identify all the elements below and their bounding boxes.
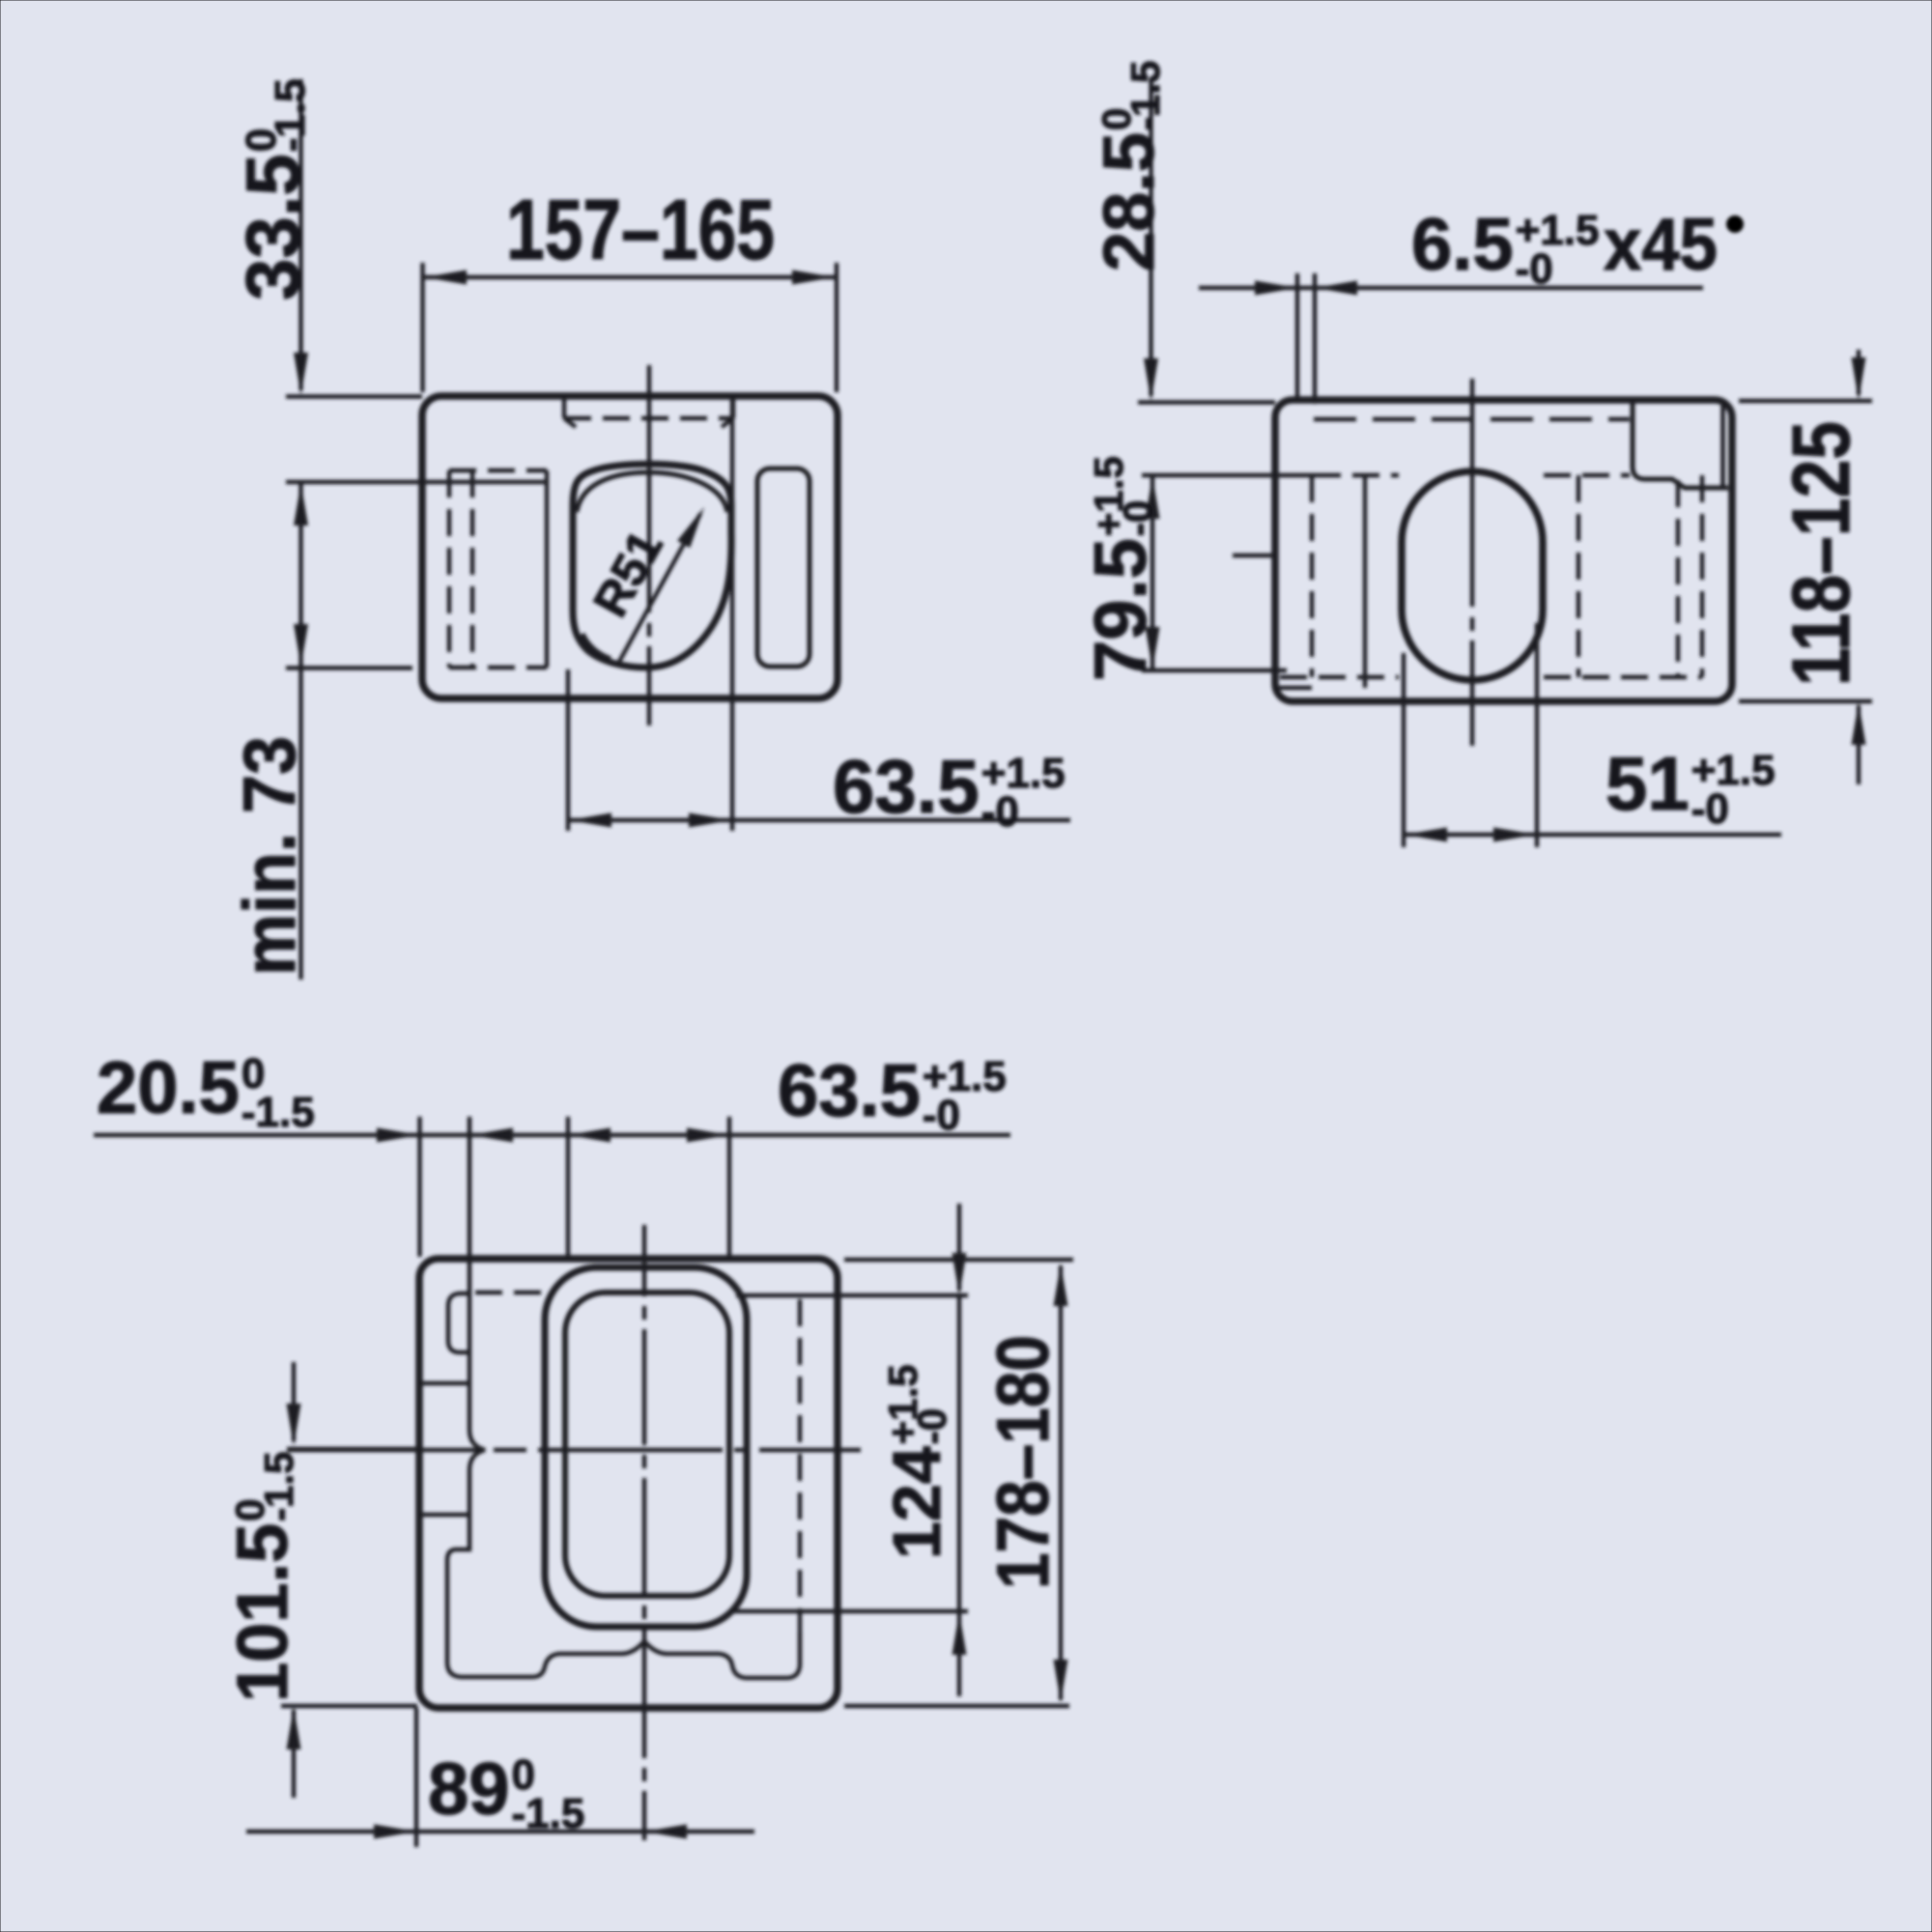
svg-text:63.5: 63.5 xyxy=(833,744,980,829)
svg-text:79.5: 79.5 xyxy=(1080,538,1162,681)
svg-text:-1.5: -1.5 xyxy=(241,1089,315,1136)
svg-text:-0: -0 xyxy=(1115,500,1160,536)
svg-text:-0: -0 xyxy=(981,788,1019,836)
svg-text:x45: x45 xyxy=(1604,204,1718,286)
svg-text:-0: -0 xyxy=(1691,785,1729,833)
svg-text:101.5: 101.5 xyxy=(222,1523,302,1702)
svg-text:157–165: 157–165 xyxy=(506,182,775,277)
svg-text:118–125: 118–125 xyxy=(1776,421,1866,686)
svg-text:-0: -0 xyxy=(923,1092,960,1139)
svg-text:R51: R51 xyxy=(582,522,672,625)
svg-text:-1.5: -1.5 xyxy=(267,78,314,152)
svg-text:124: 124 xyxy=(879,1446,954,1559)
svg-text:-1.5: -1.5 xyxy=(256,1451,301,1520)
svg-text:89: 89 xyxy=(428,1748,510,1831)
svg-text:63.5: 63.5 xyxy=(778,1050,921,1132)
svg-text:-1.5: -1.5 xyxy=(512,1790,585,1837)
svg-text:51: 51 xyxy=(1605,741,1690,826)
svg-text:min. 73: min. 73 xyxy=(229,736,311,976)
svg-text:-0: -0 xyxy=(909,1408,954,1444)
svg-text:178–180: 178–180 xyxy=(982,1335,1065,1589)
svg-text:-1.5: -1.5 xyxy=(1122,61,1168,130)
svg-text:-0: -0 xyxy=(1516,245,1553,293)
svg-text:6.5: 6.5 xyxy=(1411,204,1514,286)
svg-text:20.5: 20.5 xyxy=(97,1047,240,1129)
svg-text:33.5: 33.5 xyxy=(230,154,315,300)
svg-text:28.5: 28.5 xyxy=(1089,132,1169,271)
